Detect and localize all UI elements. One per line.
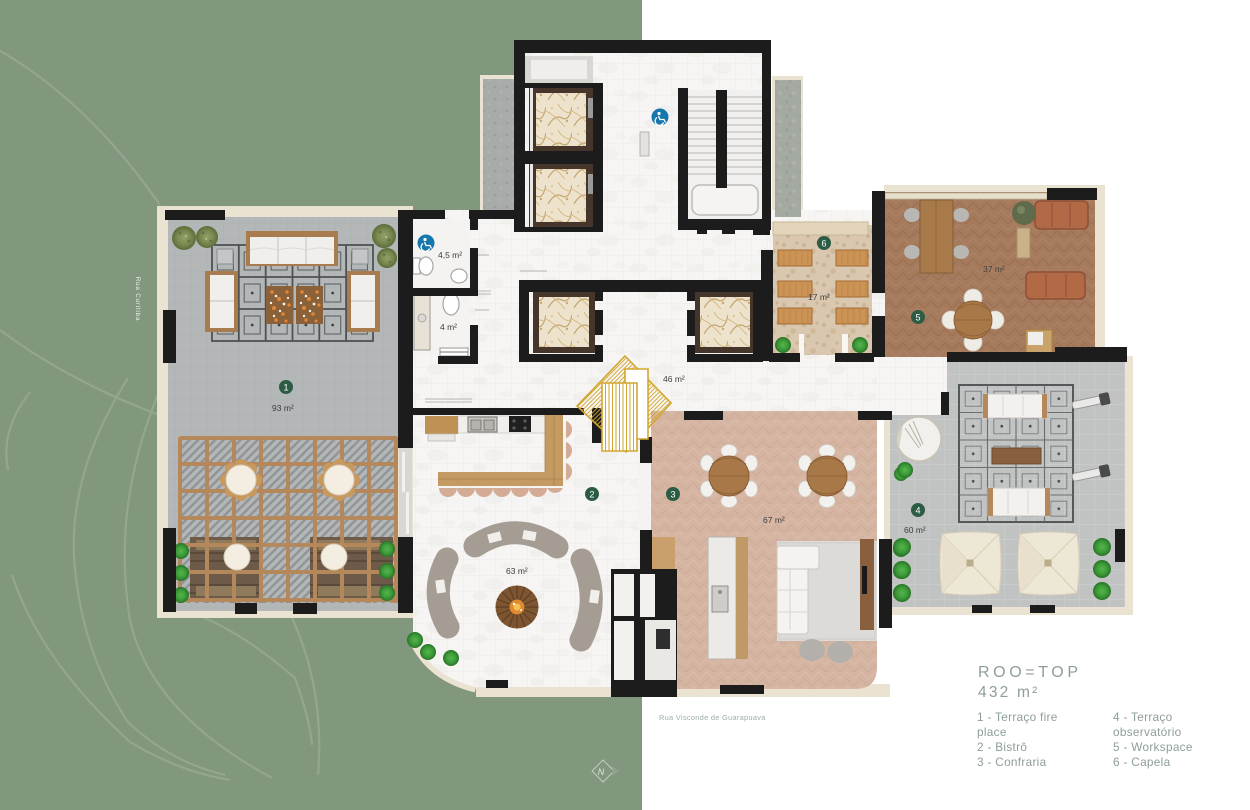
svg-text:5: 5: [915, 313, 920, 323]
svg-text:6: 6: [821, 239, 826, 249]
svg-text:Rua Curitiba: Rua Curitiba: [134, 277, 141, 322]
svg-text:2 - Bistrô: 2 - Bistrô: [977, 740, 1027, 754]
svg-text:4: 4: [915, 506, 920, 516]
svg-text:4,5 m²: 4,5 m²: [438, 250, 462, 260]
svg-text:63 m²: 63 m²: [506, 566, 528, 576]
svg-text:60 m²: 60 m²: [904, 525, 926, 535]
svg-text:432 m²: 432 m²: [978, 684, 1039, 701]
svg-text:17 m²: 17 m²: [808, 292, 830, 302]
svg-text:place: place: [977, 725, 1007, 739]
svg-text:67 m²: 67 m²: [763, 515, 785, 525]
svg-text:2: 2: [589, 490, 594, 500]
svg-text:6 - Capela: 6 - Capela: [1113, 755, 1171, 769]
svg-text:46 m²: 46 m²: [663, 374, 685, 384]
svg-text:5 - Workspace: 5 - Workspace: [1113, 740, 1193, 754]
svg-text:37 m²: 37 m²: [983, 264, 1005, 274]
svg-text:observatório: observatório: [1113, 725, 1182, 739]
svg-text:93 m²: 93 m²: [272, 403, 294, 413]
svg-text:4 - Terraço: 4 - Terraço: [1113, 710, 1173, 724]
svg-text:N: N: [598, 767, 605, 777]
svg-text:1: 1: [283, 383, 288, 393]
svg-text:4 m²: 4 m²: [440, 322, 457, 332]
svg-text:3 - Confraria: 3 - Confraria: [977, 755, 1047, 769]
svg-text:Rua Visconde de Guarapuava: Rua Visconde de Guarapuava: [659, 713, 766, 722]
svg-text:1 - Terraço fire: 1 - Terraço fire: [977, 710, 1058, 724]
svg-text:ROO=TOP: ROO=TOP: [978, 664, 1082, 681]
svg-text:3: 3: [670, 490, 675, 500]
